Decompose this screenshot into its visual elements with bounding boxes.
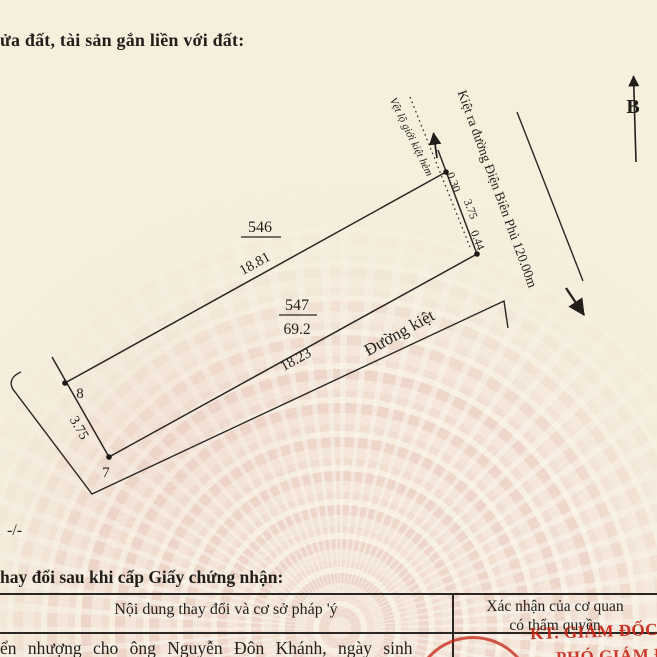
road-setback-dotted-line <box>410 97 470 247</box>
parcel-number: 547 <box>285 297 309 314</box>
table-col2-header-line1: Xác nhận của cơ quan <box>453 598 657 617</box>
dim-offset-bottom: 0.44 <box>468 229 487 252</box>
cadastral-diagram: B 546 547 69.2 18.81 18.23 3.75 0.30 3.7… <box>0 0 657 657</box>
dim-offset-top: 0.30 <box>444 171 463 194</box>
certificate-page: ửa đất, tài sản gắn liền với đất: <box>0 0 657 657</box>
table-top-border <box>0 593 657 595</box>
amendment-entry-text: ển nhượng cho ông Nguyễn Đôn Khánh, ngày… <box>0 638 413 657</box>
vertex-7-label: 7 <box>102 465 110 481</box>
setback-direction-arrow <box>434 133 438 158</box>
adjacent-parcel-number: 546 <box>248 219 272 236</box>
parcel-547-outline <box>52 150 477 457</box>
north-arrow: B <box>626 76 639 162</box>
table-col1-header: Nội dung thay đổi và cơ sở pháp 'ý <box>0 601 452 619</box>
divider-mark: -/- <box>7 522 22 540</box>
north-label: B <box>626 96 639 118</box>
alley-label: Đường kiệt <box>361 306 438 360</box>
amendments-section-title: hay đổi sau khi cấp Giấy chứng nhận: <box>0 567 283 588</box>
alley-far-edge-line <box>11 301 508 494</box>
vertex-8-label: 8 <box>76 386 84 402</box>
dim-bottom: 18.23 <box>278 345 314 375</box>
alley-direction-arrow <box>566 288 584 315</box>
boundary-note: Vệt lộ giới kiệt hẻm <box>387 96 435 179</box>
parcel-area: 69.2 <box>283 321 310 338</box>
dim-top: 18.81 <box>237 249 273 279</box>
